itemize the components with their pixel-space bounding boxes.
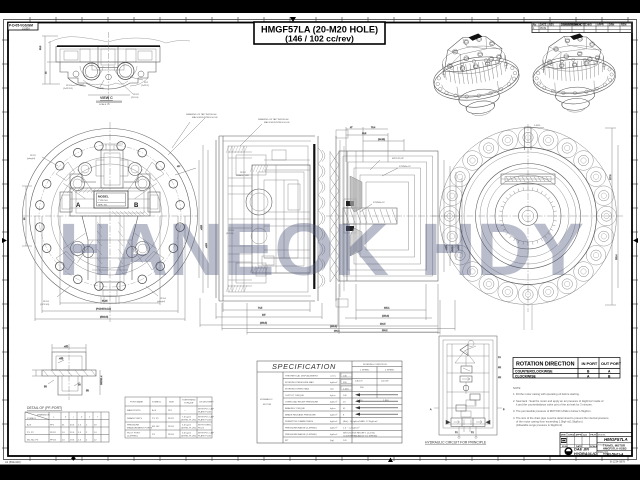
- svg-text:PRESSURE RANGE (2-SPEED): PRESSURE RANGE (2-SPEED): [285, 426, 317, 429]
- svg-text:rpm: rpm: [330, 387, 334, 390]
- svg-text:PLATE PLUG: PLATE PLUG: [198, 435, 212, 438]
- svg-text:TIGHTENING: TIGHTENING: [182, 400, 196, 402]
- svg-text:DRAIN PORT: DRAIN PORT: [236, 174, 250, 177]
- svg-text:DIMENSION: DIMENSION: [37, 415, 50, 417]
- svg-text:2. Seal tank : Seal the motor: 2. Seal tank : Seal the motor and apply …: [513, 399, 604, 403]
- svg-text:(190.3): (190.3): [382, 316, 389, 318]
- svg-text:3.6 kgf-m: 3.6 kgf-m: [182, 433, 191, 435]
- svg-text:CHKD: CHKD: [568, 434, 575, 436]
- svg-text:PORT NAME: PORT NAME: [130, 400, 143, 403]
- svg-text:SHOCKLESS RELIEF 1 (2-5/16): SHOCKLESS RELIEF 1 (2-5/16): [343, 433, 375, 435]
- svg-text:(PCD45 B.C.D): (PCD45 B.C.D): [96, 309, 111, 311]
- svg-text:SYMBOL: SYMBOL: [152, 401, 162, 403]
- svg-text:(2-PF1/4): (2-PF1/4): [40, 304, 50, 306]
- svg-text:WORKING CONDITION: WORKING CONDITION: [363, 364, 387, 366]
- svg-text:37WNB=CC: 37WNB=CC: [373, 202, 385, 204]
- svg-text:(268.5): (268.5): [260, 323, 267, 325]
- svg-text:(kg): (kg): [330, 440, 334, 442]
- svg-text:kgf/cm²: kgf/cm²: [330, 400, 337, 403]
- svg-text:152.4: 152.4: [616, 254, 618, 260]
- svg-text:MOTOR: MOTOR: [263, 404, 272, 406]
- svg-text:NOTE: NOTE: [513, 386, 521, 390]
- svg-text:cc/rev: cc/rev: [330, 374, 337, 377]
- svg-text:TORQUE: TORQUE: [184, 403, 194, 405]
- svg-text:kgf/cm²: kgf/cm²: [330, 433, 337, 436]
- svg-text:A, B: A, B: [152, 409, 157, 412]
- svg-text:M1, M2, P3: M1, M2, P3: [27, 440, 39, 442]
- svg-text:PRESSURE RANGE (2-SPEED): PRESSURE RANGE (2-SPEED): [285, 433, 317, 436]
- svg-text:PF1/4: PF1/4: [168, 434, 175, 436]
- svg-text:PERMITTED DRAIN PRESS: PERMITTED DRAIN PRESS: [285, 420, 314, 423]
- svg-text:MODEL: MODEL: [98, 195, 109, 199]
- svg-text:WORKING PRESSURE MAX: WORKING PRESSURE MAX: [285, 381, 314, 384]
- svg-text:BRAKING TORQUE: BRAKING TORQUE: [285, 407, 305, 410]
- svg-text:95.25: 95.25: [102, 301, 108, 303]
- svg-text:177.8: 177.8: [610, 174, 612, 180]
- svg-text:kgf/cm²: kgf/cm²: [330, 413, 337, 416]
- svg-text:(b): (b): [44, 386, 47, 388]
- svg-text:(2xM8): (2xM8): [97, 88, 104, 90]
- svg-text:45°: 45°: [177, 166, 180, 168]
- svg-text:kgf/cm²: kgf/cm²: [330, 426, 337, 429]
- svg-text:SYMBOL: SYMBOL: [27, 418, 37, 420]
- svg-text:SCALE: SCALE: [590, 445, 598, 448]
- svg-text:OUTPUT TORQUE: OUTPUT TORQUE: [285, 395, 304, 397]
- svg-text:SPECIFICATION: SPECIFICATION: [272, 362, 336, 371]
- svg-text:(STEEL PLUG): (STEEL PLUG): [181, 428, 196, 430]
- svg-text:(268.5): (268.5): [330, 326, 337, 328]
- svg-text:PF1/4: PF1/4: [50, 440, 57, 442]
- svg-text:ø(E): ø(E): [59, 358, 64, 360]
- svg-text:PF1/2: PF1/2: [168, 418, 175, 420]
- svg-text:REM: REM: [621, 23, 626, 26]
- svg-text:DRN: DRN: [609, 23, 614, 26]
- svg-text:PLATE PLUG: PLATE PLUG: [198, 419, 212, 422]
- svg-text:OUT PORT: OUT PORT: [601, 361, 622, 366]
- svg-text:IN PORT: IN PORT: [582, 361, 598, 366]
- svg-text:P1, P2: P1, P2: [152, 418, 159, 420]
- svg-text:234.2: 234.2: [382, 330, 388, 332]
- svg-text:MACH MOUNTING HOLE: MACH MOUNTING HOLE: [264, 121, 290, 124]
- svg-text:it and the counterbalance valv: it and the counterbalance valve port of …: [516, 402, 593, 406]
- svg-text:kgf-m: kgf-m: [330, 395, 336, 397]
- svg-text:MACH MOUNTING HOLE: MACH MOUNTING HOLE: [192, 116, 218, 119]
- svg-text:A, B: A, B: [27, 424, 32, 427]
- svg-text:MEASUREMENT PORTS: MEASUREMENT PORTS: [127, 427, 153, 430]
- svg-text:(plug/pf): (plug/pf): [157, 301, 165, 303]
- svg-text:DRAWING OF TAP THROUGH: DRAWING OF TAP THROUGH: [186, 113, 217, 116]
- svg-text:T2B3-59-01-A: T2B3-59-01-A: [603, 452, 624, 456]
- svg-text:(Ref) : 10 kgf/cm² ABS: 17.5: (Ref) : 10 kgf/cm² ABS: 17.5kgf/cm²: [343, 420, 378, 423]
- svg-text:DETAIL d: DETAIL d: [100, 375, 103, 385]
- svg-text:(d): (d): [86, 390, 89, 392]
- svg-text:(STEEL PLUG): (STEEL PLUG): [181, 420, 196, 422]
- svg-text:165.1: 165.1: [384, 308, 390, 310]
- svg-text:kgf/cm²: kgf/cm²: [330, 420, 337, 423]
- svg-text:SCALE 1/2: SCALE 1/2: [99, 103, 111, 106]
- svg-text:A2 (594x420): A2 (594x420): [5, 460, 21, 464]
- svg-text:WITH STEEL: WITH STEEL: [198, 425, 212, 427]
- svg-text:DRAIN PORTS: DRAIN PORTS: [127, 417, 142, 420]
- svg-text:HYDRAULIC: HYDRAULIC: [260, 398, 273, 401]
- svg-text:TYPE NO.: TYPE NO.: [98, 200, 109, 202]
- svg-text:WORKING SPEED MAX: WORKING SPEED MAX: [285, 387, 310, 390]
- svg-text:ROTATION DIRECTION: ROTATION DIRECTION: [516, 362, 575, 368]
- svg-text:HYDRAULIC CIRCUIT FOR PRINCIPL: HYDRAULIC CIRCUIT FOR PRINCIPLE: [425, 441, 487, 445]
- svg-text:05.09: 05.09: [540, 27, 547, 30]
- svg-text:3. The permissible pressure of: 3. The permissible pressure of MOTOR CAS…: [513, 409, 592, 413]
- svg-text:1.0 ~ 1.2 kgf/cm²: 1.0 ~ 1.2 kgf/cm²: [343, 426, 360, 429]
- svg-text:Q.A: Q.A: [583, 433, 587, 436]
- svg-text:(Allowable surge pressure is 3: (Allowable surge pressure is 3kgf/cm2): [516, 423, 562, 427]
- svg-text:PLUG: PLUG: [198, 428, 204, 430]
- svg-text:146.1/9: 146.1/9: [355, 381, 363, 383]
- svg-text:20-M20: 20-M20: [573, 23, 582, 26]
- svg-text:1 SPEED: 1 SPEED: [360, 369, 370, 371]
- svg-text:MAIN PORTS: MAIN PORTS: [127, 409, 141, 412]
- svg-text:BRAKE RELEASE PRESSURE: BRAKE RELEASE PRESSURE: [285, 413, 316, 416]
- svg-text:(plug/pf): (plug/pf): [27, 158, 35, 160]
- svg-text:kgf/cm²: kgf/cm²: [330, 381, 337, 384]
- svg-text:B-1234-5878: B-1234-5878: [610, 460, 626, 464]
- svg-text:COUNTERBALANCE V/V SPRING: COUNTERBALANCE V/V SPRING: [343, 435, 377, 438]
- svg-text:1,900: 1,900: [383, 400, 389, 402]
- svg-text:102.4/9: 102.4/9: [381, 381, 389, 383]
- svg-text:WITH PVC CAP: WITH PVC CAP: [198, 408, 214, 411]
- svg-text:ø(F): ø(F): [64, 346, 68, 348]
- svg-text:ON DELIVERY: ON DELIVERY: [199, 401, 214, 403]
- svg-text:(c): (c): [78, 384, 81, 386]
- svg-text:P1, P2: P1, P2: [27, 432, 34, 434]
- svg-text:PRESSURE: PRESSURE: [127, 425, 140, 427]
- svg-text:PF1/2: PF1/2: [50, 432, 57, 434]
- svg-text:224.5: 224.5: [380, 324, 386, 326]
- svg-text:(2xPF1): (2xPF1): [141, 85, 149, 87]
- svg-text:WITH PVC CAP: WITH PVC CAP: [198, 432, 214, 435]
- svg-text:kgf-m: kgf-m: [330, 408, 336, 410]
- svg-text:PF1/2: PF1/2: [30, 155, 37, 157]
- svg-text:OVERLOAD RELIEF PRESSURE: OVERLOAD RELIEF PRESSURE: [285, 400, 319, 403]
- svg-text:PF1/4: PF1/4: [43, 301, 50, 303]
- svg-text:3.6 kgf-m: 3.6 kgf-m: [182, 425, 191, 427]
- svg-text:DRN: DRN: [561, 434, 566, 436]
- svg-text:1. Fill the motor casing with: 1. Fill the motor casing with operating …: [513, 392, 580, 396]
- svg-text:4. The size of the drain pipe: 4. The size of the drain pipe must be de…: [513, 416, 609, 420]
- svg-text:DETAIL OF (PF-PORT): DETAIL OF (PF-PORT): [27, 406, 62, 410]
- svg-text:1,330: 1,330: [357, 400, 363, 402]
- svg-text:CLOCKWISE: CLOCKWISE: [515, 374, 536, 378]
- svg-text:SIZE: SIZE: [169, 401, 174, 403]
- svg-text:DRAWING OF TAP THROUGH: DRAWING OF TAP THROUGH: [258, 118, 289, 121]
- svg-text:2-M20: 2-M20: [534, 125, 541, 127]
- svg-text:THEORETICAL DISPLACEMENT: THEORETICAL DISPLACEMENT: [285, 374, 319, 377]
- svg-text:PLATE PLUG: PLATE PLUG: [198, 411, 212, 414]
- svg-text:M1, M2: M1, M2: [152, 426, 160, 428]
- svg-text:APPR: APPR: [576, 433, 582, 436]
- svg-text:(STEEL PLUG): (STEEL PLUG): [181, 436, 196, 438]
- svg-text:HYDRAULIC: HYDRAULIC: [574, 452, 597, 456]
- svg-text:SER. NO.: SER. NO.: [98, 205, 108, 207]
- svg-text:PF1/2: PF1/2: [133, 94, 140, 96]
- svg-text:PILOT PORT: PILOT PORT: [127, 433, 141, 435]
- svg-text:COUNTERCLOCKWISE: COUNTERCLOCKWISE: [515, 369, 553, 373]
- svg-text:7.6 kgf-m: 7.6 kgf-m: [182, 417, 191, 419]
- svg-text:HANEOK: HANEOK: [58, 208, 389, 291]
- svg-text:HMGF57LA-USB3: HMGF57LA-USB3: [603, 446, 627, 450]
- svg-text:(2-SPEED): (2-SPEED): [127, 436, 138, 438]
- svg-text:(94.35): (94.35): [378, 139, 385, 141]
- svg-text:1/10EA: 1/10EA: [22, 28, 30, 31]
- svg-text:(146 / 102 cc/rev): (146 / 102 cc/rev): [285, 34, 354, 44]
- svg-text:37WNB=CC: 37WNB=CC: [399, 166, 411, 168]
- svg-text:PF1/2: PF1/2: [240, 172, 247, 174]
- svg-text:VIEW C: VIEW C: [100, 96, 113, 100]
- svg-text:(#240.5): (#240.5): [100, 317, 108, 319]
- svg-text:PF1/4: PF1/4: [66, 85, 73, 87]
- svg-text:PRJT: PRJT: [590, 434, 596, 436]
- svg-text:of the motor casing from excee: of the motor casing from exceeding 1.5kg…: [516, 419, 584, 423]
- svg-text:REV: REV: [549, 23, 554, 26]
- svg-text:HDY: HDY: [420, 208, 584, 291]
- svg-text:2 SPEED: 2 SPEED: [385, 369, 395, 371]
- svg-text:APPR: APPR: [597, 23, 604, 26]
- svg-text:(PLUG): (PLUG): [131, 97, 139, 99]
- svg-text:CHKD: CHKD: [585, 23, 592, 26]
- svg-text:PF1/4: PF1/4: [160, 298, 167, 300]
- svg-text:M27DP0.3P: M27DP0.3P: [392, 158, 404, 160]
- svg-text:(2xPF1/4): (2xPF1/4): [63, 88, 73, 90]
- svg-text:HMGF57LA: HMGF57LA: [604, 437, 628, 442]
- svg-text:WITH PVC CAP: WITH PVC CAP: [198, 416, 214, 419]
- svg-text:PF1/4: PF1/4: [168, 426, 175, 428]
